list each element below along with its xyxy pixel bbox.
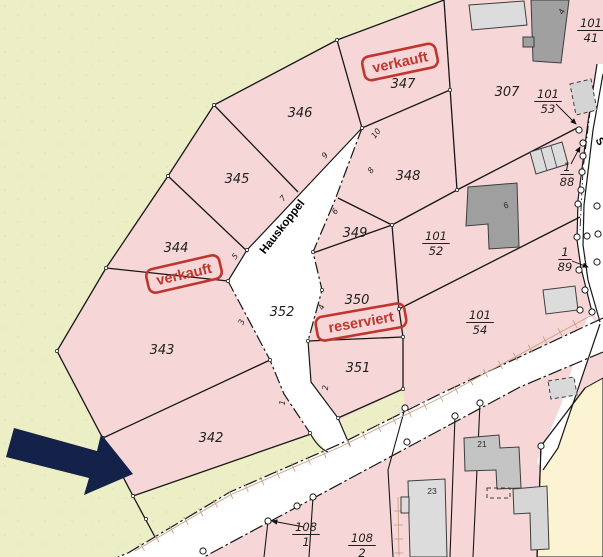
boundary-point	[245, 248, 248, 251]
cadastral-map: 3423433443453463473483493503513523071014…	[0, 0, 603, 557]
building-top-light	[469, 1, 527, 30]
boundary-point	[212, 103, 215, 106]
fraction-bottom: 89	[558, 260, 573, 274]
fraction-top: 101	[537, 87, 559, 101]
boundary-point	[401, 335, 404, 338]
boundary-point	[308, 431, 311, 434]
boundary-point	[311, 250, 314, 253]
building-number-21: 21	[477, 439, 487, 449]
building-23-annex	[401, 497, 409, 513]
survey-circle	[577, 307, 583, 313]
survey-circle	[578, 187, 584, 193]
survey-circle	[580, 153, 586, 159]
boundary-point	[397, 307, 400, 310]
survey-circle	[594, 203, 600, 209]
building-54	[543, 286, 578, 314]
boundary-point	[226, 279, 229, 282]
parcel-label-352: 352	[270, 305, 295, 320]
parcel-label-349: 349	[343, 226, 368, 241]
parcel-label-307: 307	[495, 85, 521, 100]
survey-circle	[404, 439, 410, 445]
boundary-point	[104, 266, 107, 269]
parcel-label-351: 351	[346, 361, 371, 376]
boundary-point	[306, 339, 309, 342]
survey-circle	[310, 494, 316, 500]
boundary-point	[268, 358, 271, 361]
boundary-point	[390, 223, 393, 226]
fraction-bottom: 2	[358, 546, 365, 557]
survey-circle	[574, 234, 580, 240]
boundary-point	[335, 38, 338, 41]
boundary-point	[55, 349, 58, 352]
parcel-label-345: 345	[225, 172, 250, 187]
boundary-point	[320, 288, 323, 291]
survey-circle	[538, 443, 544, 449]
survey-circle	[589, 309, 595, 315]
survey-circle	[580, 140, 586, 146]
survey-circle	[477, 400, 483, 406]
boundary-point	[144, 517, 147, 520]
parcel-label-343: 343	[150, 343, 175, 358]
parcel-label-342: 342	[199, 431, 224, 446]
parcel-label-344: 344	[164, 241, 189, 256]
parcel-label-346: 346	[288, 106, 313, 121]
survey-circle	[576, 127, 582, 133]
fraction-top: 1	[561, 245, 568, 259]
survey-circle	[200, 548, 206, 554]
fraction-bottom: 52	[429, 244, 444, 258]
parcel-label-348: 348	[396, 169, 421, 184]
survey-circle	[579, 169, 585, 175]
fraction-top: 101	[469, 308, 491, 322]
house-number-1: 1	[278, 400, 287, 406]
fraction-bottom: 88	[560, 175, 575, 189]
survey-circle	[576, 267, 582, 273]
fraction-top: 108	[351, 531, 373, 545]
survey-circle	[265, 518, 271, 524]
boundary-point	[448, 88, 451, 91]
boundary-point	[401, 387, 404, 390]
survey-circle	[402, 405, 408, 411]
boundary-point	[336, 416, 339, 419]
fraction-bottom: 1	[302, 535, 309, 549]
fraction-bottom: 53	[541, 102, 556, 116]
survey-circle	[595, 231, 601, 237]
building-top-dark-annex	[523, 37, 534, 47]
house-number-2: 2	[321, 385, 330, 391]
fraction-bottom: 54	[473, 323, 488, 337]
survey-circle	[452, 413, 458, 419]
survey-circle	[584, 233, 590, 239]
fraction-top: 101	[425, 229, 447, 243]
parcel-label-350: 350	[345, 293, 370, 308]
boundary-point	[131, 494, 134, 497]
building-number-23: 23	[427, 486, 437, 496]
survey-circle	[575, 201, 581, 207]
boundary-point	[166, 174, 169, 177]
boundary-point	[455, 188, 458, 191]
fraction-bottom: 41	[584, 31, 599, 45]
survey-circle	[294, 503, 300, 509]
parcel-label-347: 347	[391, 77, 417, 92]
map-canvas: 3423433443453463473483493503513523071014…	[0, 0, 603, 557]
fraction-top: 101	[580, 16, 602, 30]
survey-circle	[582, 287, 588, 293]
fraction-top: 1	[563, 160, 570, 174]
fraction-top: 108	[295, 520, 317, 534]
survey-circle	[594, 259, 600, 265]
boundary-point	[360, 126, 363, 129]
